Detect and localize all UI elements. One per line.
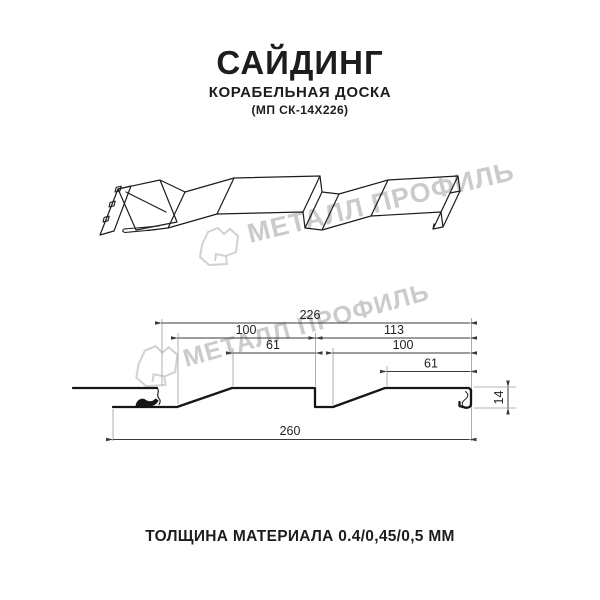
watermark-brand-text: МЕТАЛЛ ПРОФИЛЬ — [244, 156, 517, 249]
right-end-break-squiggle — [462, 392, 468, 409]
technical-drawing-canvas: МЕТАЛЛ ПРОФИЛЬ МЕТАЛЛ ПРОФИЛЬ — [0, 0, 600, 600]
section-profile — [73, 388, 471, 409]
lock-hook-detail — [136, 399, 158, 406]
dim-plank2-113: 113 — [384, 323, 404, 337]
watermark-3d: МЕТАЛЛ ПРОФИЛЬ — [200, 156, 517, 265]
brand-logo-icon — [200, 228, 238, 265]
dim-plank1-100: 100 — [236, 323, 257, 337]
dim-height-14: 14 — [492, 391, 506, 405]
dim-plank1-61: 61 — [266, 338, 280, 352]
lock-fold — [118, 180, 185, 230]
product-diagram-page: САЙДИНГ КОРАБЕЛЬНАЯ ДОСКА (МП СК-14Х226)… — [0, 0, 600, 600]
dim-plank2-61: 61 — [424, 357, 438, 371]
brand-logo-icon — [136, 346, 177, 386]
dim-plank2-100: 100 — [393, 338, 414, 352]
dimension-lines — [113, 323, 508, 440]
main-profile-outline — [113, 388, 471, 408]
dim-overall-260: 260 — [280, 424, 301, 438]
material-thickness-note: ТОЛЩИНА МАТЕРИАЛА 0.4/0,45/0,5 ММ — [0, 528, 600, 546]
dim-module-226: 226 — [300, 308, 321, 322]
nail-strip — [100, 186, 131, 235]
